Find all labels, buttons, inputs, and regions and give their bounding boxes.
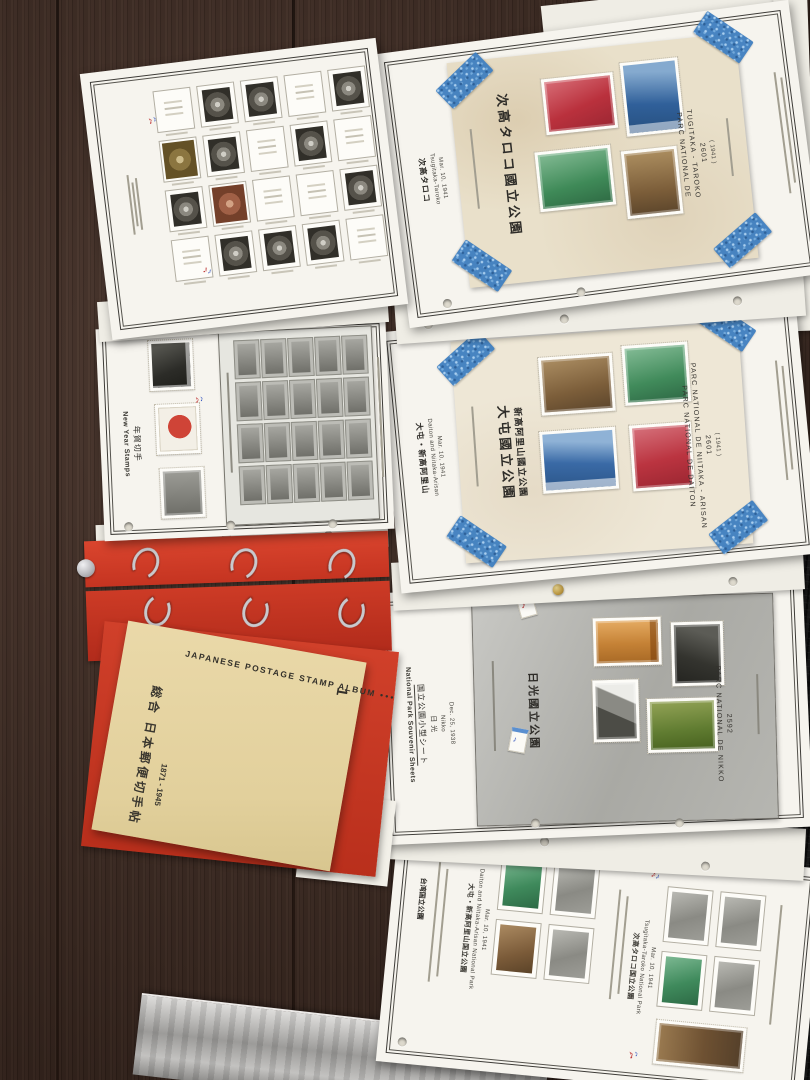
sheet-year: 2601 [702, 435, 711, 456]
souvenir-sheet-nikko: 日光國立公園 PARC NATIONAL DE NIKKO 2592 ♪ [471, 593, 779, 827]
stamp-green [534, 145, 616, 213]
stamp-cell [202, 131, 245, 177]
sheet-stamp-cell [314, 336, 342, 376]
place-en: Nikko [438, 715, 446, 732]
stamp-image [650, 700, 715, 750]
issue-date: Mar. 10, 1941 [435, 435, 446, 477]
stamp-image [158, 406, 198, 452]
stamp-cell [258, 225, 301, 271]
sheet-stamp-cell [341, 335, 369, 375]
sheet-stamp-cell [233, 339, 261, 379]
sheet-title-jp: 次高タロコ國立公園 [494, 93, 524, 238]
cover-years-block: 1871 - 1945 [149, 752, 172, 817]
punch-hole [733, 296, 743, 306]
stamp-gray-single [160, 467, 206, 519]
music-note-icon: ♪ [512, 735, 517, 744]
header-en: New Year Stamps [121, 411, 132, 477]
punch-hole [701, 861, 710, 870]
stamp-red [541, 72, 618, 135]
stamp-cell [339, 165, 382, 211]
cover-dots: • • • [379, 690, 394, 703]
sheet-stamp-cell [289, 379, 317, 419]
cover-volume-block: 1 [332, 681, 351, 702]
stamp-cell [214, 230, 257, 276]
stamp-cell [491, 919, 542, 979]
sheet-year: 2592 [724, 714, 733, 735]
stamp-image [541, 356, 612, 413]
stamp-green [647, 697, 718, 753]
stamp-image [151, 342, 191, 388]
stamp-dark-single [148, 339, 194, 391]
punch-hole [559, 314, 569, 324]
stamp-cell [240, 76, 283, 122]
stamp-cell [290, 120, 333, 166]
souvenir-sheet-tsugitaka: 次高タロコ國立公園 PARC NATIONAL DE TUGITAKA - TA… [447, 33, 759, 288]
photo-scene: 台湾国立公園 大屯・新高阿里山国立公園 Daiton and Niitaka-A… [0, 0, 810, 1080]
sheet-margin-text [471, 407, 479, 487]
stamp-red-single [155, 403, 201, 455]
stamp-cell [152, 87, 195, 133]
stamp-cell [543, 924, 594, 984]
stamp-cell [715, 891, 766, 951]
stamp-image [538, 148, 613, 209]
sheet-stamp-cell [262, 380, 290, 420]
souvenir-sheet-daiton: 大屯國立公園 新高阿里山國立公園 PARC NATIONAL DE DAITON… [451, 322, 754, 564]
stamp-image [163, 470, 203, 516]
header-jp: 年賀切手 [131, 426, 142, 462]
stamp-cell [196, 81, 239, 127]
stamp-cell [345, 214, 388, 260]
punch-hole [540, 837, 549, 846]
stamp-cell [656, 951, 707, 1011]
cover-volume: 1 [332, 686, 350, 697]
sheet-year-paren: ( 1941 ) [707, 140, 716, 164]
stamp-brown-wide [653, 1020, 747, 1072]
punch-hole [675, 818, 684, 827]
sheet-stamp-cell [260, 338, 288, 378]
full-sheet-reproduction [218, 325, 380, 526]
stamp-cell [709, 956, 760, 1016]
album-page-nikko: National Park Souvenir Sheets 国立公園小型シート … [373, 575, 810, 846]
sheet-title: 次高タロコ國立公園 [492, 89, 526, 242]
sheet-stamp-cell [318, 420, 346, 460]
stamp-brown [538, 353, 616, 416]
sheet-year: 2601 [697, 143, 707, 164]
album-page-new-year: New Year Stamps 年賀切手 ♪♪ [96, 317, 395, 541]
stamp-cell [246, 126, 289, 172]
sheet-margin-text [756, 674, 760, 734]
sheet-stamp-cell [264, 422, 292, 462]
sheet-stamp-cell [266, 464, 294, 504]
stamp-image [656, 1023, 743, 1069]
stamp-cell [302, 220, 345, 266]
place-jp: 日 光 [428, 715, 437, 733]
stamp-orange [593, 617, 662, 667]
group1-grid [491, 854, 599, 984]
french-inscription: PARC NATIONAL DE NIKKO 2592 [708, 659, 739, 790]
punch-hole [328, 519, 337, 528]
stamp-image [596, 620, 659, 664]
page-header: National Park Souvenir Sheets 国立公園小型シート … [397, 642, 462, 806]
sheet-margin-text [726, 118, 734, 176]
stamp-cell [159, 136, 202, 182]
sheet-stamp-cell [287, 337, 315, 377]
stamp-image [595, 682, 636, 739]
sheet-margin-text [227, 373, 233, 473]
stamp-photogravure [592, 679, 640, 742]
punch-hole [728, 577, 737, 586]
sheet-stamp-cell [343, 377, 371, 417]
definitives-grid [152, 66, 386, 282]
sheet-title: 大屯國立公園 新高阿里山國立公園 [489, 377, 533, 529]
stamp-cell [283, 71, 326, 117]
sheet-stamp-cell [291, 421, 319, 461]
stamp-image [544, 75, 615, 132]
plank-seam [56, 0, 59, 1080]
stamp-cell [208, 181, 251, 227]
sheet-stamp-cell [345, 419, 373, 459]
sheet-year-paren: ( 1941 ) [712, 432, 721, 456]
sheet-stamp-cell [320, 462, 348, 502]
sheet-stamp-cell [293, 463, 321, 503]
sheet-stamp-cell [239, 465, 267, 505]
sheet-margin-text [470, 129, 480, 209]
header-jp: 国立公園小型シート [413, 684, 428, 765]
brass-fastener [552, 584, 564, 596]
sheet-stamp-cell [237, 423, 265, 463]
stamp-cell [327, 65, 370, 111]
sheet-stamp-cell [347, 460, 375, 500]
stamp-cell [165, 186, 208, 232]
sheet-grid [233, 335, 372, 506]
french-inscription: PARC NATIONAL DE DAITON PARC NATIONAL DE… [677, 370, 725, 522]
stamp-cell [333, 115, 376, 161]
stamp-blue [539, 427, 619, 494]
sheet-stamp-cell [235, 381, 263, 421]
cover-years: 1871 - 1945 [152, 763, 168, 807]
page-header: New Year Stamps 年賀切手 [114, 385, 149, 502]
stamp-image [624, 149, 680, 216]
group2-grid [656, 886, 764, 1016]
stamp-cell [663, 886, 714, 946]
issue-date: Dec. 25, 1938 [446, 702, 455, 745]
sheet-title: 日光國立公園 [523, 636, 543, 786]
stamp-cell [296, 170, 339, 216]
sheet-title-jp: 日光國立公園 [526, 672, 541, 750]
stamp-brown [621, 146, 684, 219]
sheet-margin-text [492, 661, 496, 751]
sheet-title-fr: PARC NATIONAL DE NIKKO [713, 666, 724, 783]
stamp-image [542, 430, 616, 491]
stamp-cell [252, 175, 295, 221]
album-cover: 総合 日本郵便切手帖 1871 - 1945 JAPANESE POSTAGE … [91, 621, 366, 872]
album-page-definitives: ♪♪ ♪♪ [80, 38, 408, 340]
album-page-tsugitaka: 次高タロコ Tsugitaka-Taroko Mar. 10, 1941 次高タ… [374, 0, 810, 328]
sheet-stamp-cell [316, 378, 344, 418]
